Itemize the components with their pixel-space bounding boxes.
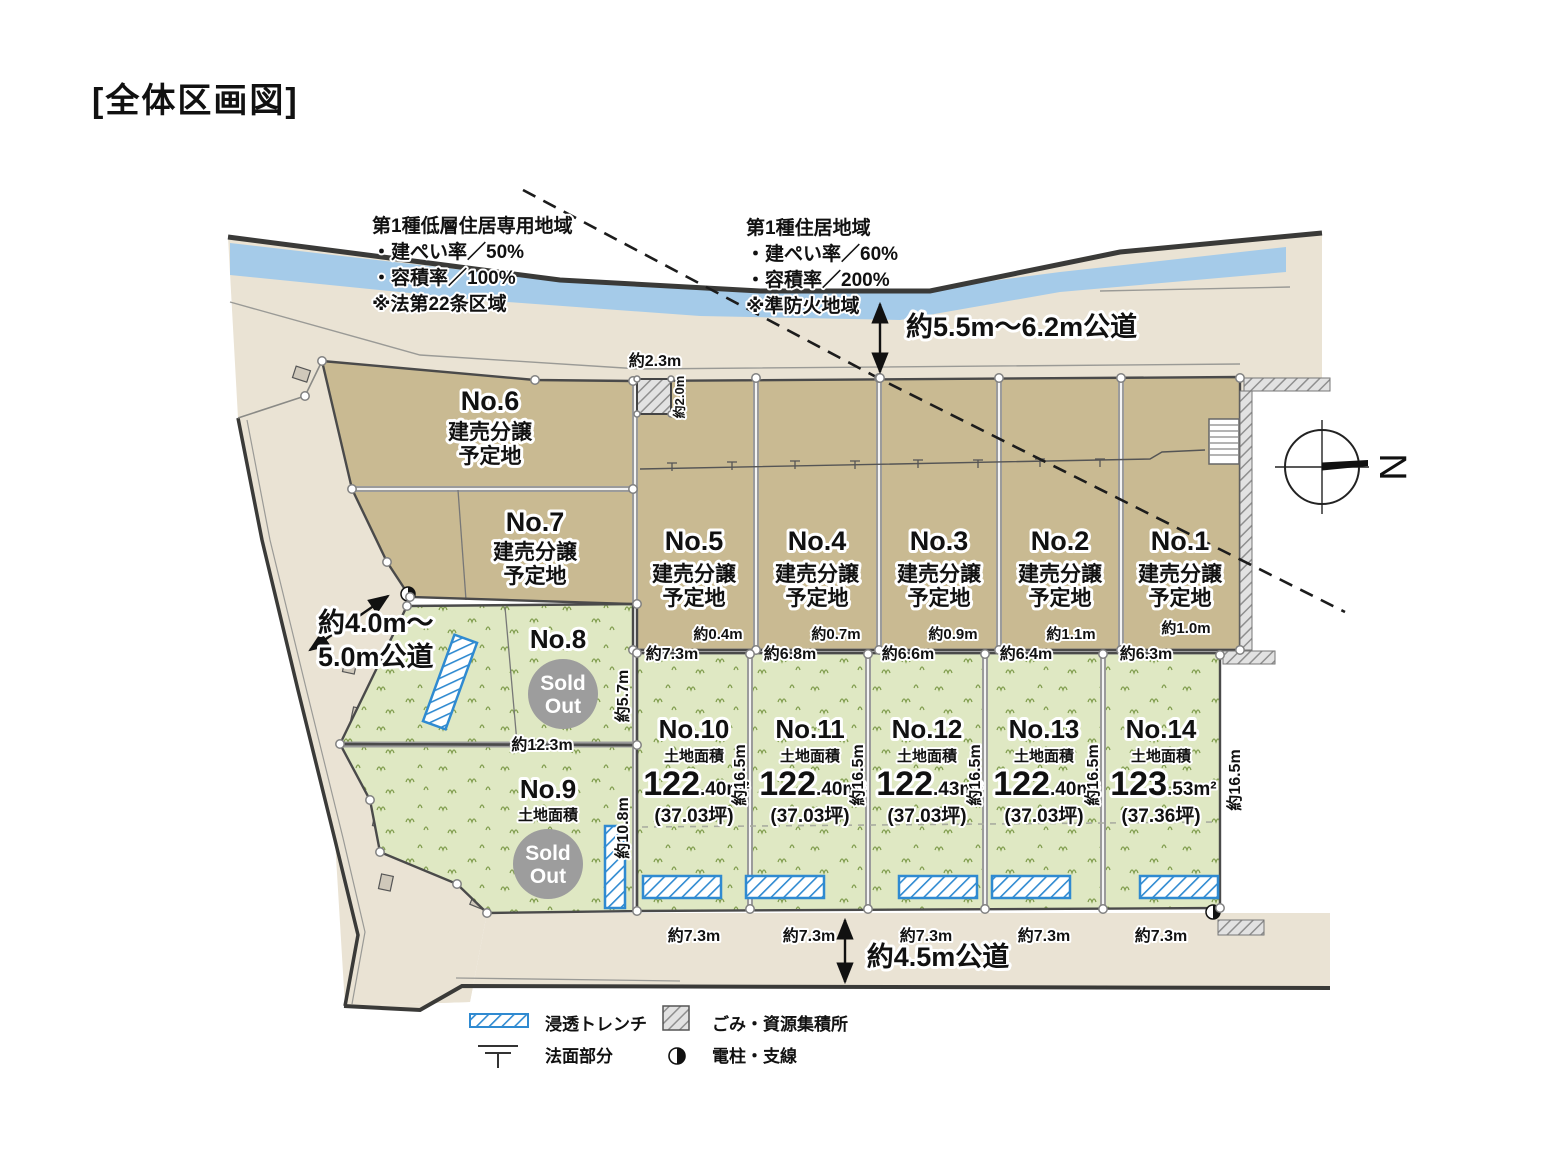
dim-brown-w2: 約6.8m — [764, 644, 816, 663]
dim-depth-no9: 約10.8m — [613, 797, 632, 858]
lot-no14-no: No.14 — [1126, 714, 1197, 744]
dim-green-w5: 約7.3m — [1135, 926, 1187, 945]
dim-offset-4: 約1.1m — [1046, 625, 1095, 643]
dim-green-w2: 約7.3m — [783, 926, 835, 945]
lot-no2-type1: 建売分譲 — [1018, 562, 1103, 586]
soldout-no8-line1: Sold — [540, 672, 586, 695]
lot-no7-no: No.7 — [506, 507, 565, 537]
lot-no10-area-label: 土地面積 — [664, 747, 725, 765]
compass-n: N — [1371, 453, 1413, 480]
lot-no6-type1: 建売分譲 — [448, 420, 533, 444]
lot-no13-no: No.13 — [1009, 714, 1080, 744]
lot-no1-type1: 建売分譲 — [1138, 562, 1223, 586]
zoning-left-coverage: ・建ぺい率／50% — [372, 240, 524, 263]
lot-no2-type2: 予定地 — [1029, 586, 1092, 610]
legend-item-pole — [669, 1048, 685, 1064]
legend-garbage-label: ごみ・資源集積所 — [712, 1014, 848, 1034]
dim-garbage: 約2.0m — [672, 376, 687, 419]
lot-no14-tsubo: (37.36坪) — [1121, 805, 1200, 827]
lot-no14-area-main: 123 — [1110, 765, 1167, 803]
zoning-right-name: 第1種住居地域 — [746, 216, 871, 239]
lot-no3-type2: 予定地 — [908, 586, 971, 610]
trench-swatch — [470, 1014, 528, 1027]
legend-item-garbage: ごみ・資源集積所 — [663, 1006, 848, 1034]
soldout-no8-line2: Out — [545, 695, 581, 718]
dim-top-setback: 約2.3m — [629, 351, 681, 370]
dim-no8-width: 約12.3m — [511, 735, 572, 754]
lot-no2-no: No.2 — [1031, 526, 1090, 556]
dim-offset-1: 約0.4m — [693, 625, 742, 643]
soldout-no8: Sold Out — [528, 659, 598, 729]
zoning-right-note: ※準防火地域 — [746, 294, 859, 317]
dim-depth-no8: 約5.7m — [613, 670, 632, 722]
hatch-strip-right — [1240, 391, 1252, 650]
left-road-label-2: 5.0m公道 — [318, 641, 434, 672]
lot-no12-area-label: 土地面積 — [897, 747, 958, 765]
lot-no10-tsubo: (37.03坪) — [654, 805, 733, 827]
lot-no5-no: No.5 — [665, 526, 724, 556]
soldout-no9-line1: Sold — [525, 842, 571, 865]
soldout-no9: Sold Out — [513, 829, 583, 899]
lot-no3-type1: 建売分譲 — [897, 562, 982, 586]
site-plan-page: Sold Out Sold Out [全体区画図] 第1種低層住居専用地域 ・建… — [0, 0, 1560, 1170]
garbage-area — [637, 379, 671, 414]
lot-no6-no: No.6 — [461, 386, 520, 416]
zoning-right-coverage: ・建ぺい率／60% — [746, 242, 898, 265]
lot-no11-area-label: 土地面積 — [780, 747, 841, 765]
legend-slope-label: 法面部分 — [545, 1046, 613, 1066]
lot-no10-area-main: 122 — [643, 765, 700, 803]
dim-green-w4: 約7.3m — [1018, 926, 1070, 945]
dim-brown-w3: 約6.6m — [882, 644, 934, 663]
dim-depth-1: 約16.5m — [730, 744, 749, 805]
lot-no14-area-label: 土地面積 — [1131, 747, 1192, 765]
dim-brown-w5: 約6.3m — [1120, 644, 1172, 663]
legend-item-trench: 浸透トレンチ — [470, 1014, 647, 1034]
dim-green-w3: 約7.3m — [900, 926, 952, 945]
dim-offset-2: 約0.7m — [811, 625, 860, 643]
lot-no6-type2: 予定地 — [459, 444, 522, 468]
lot-no3-no: No.3 — [910, 526, 969, 556]
lot-no4-no: No.4 — [788, 526, 847, 556]
dim-depth-4: 約16.5m — [1083, 744, 1102, 805]
lot-no13-area-label: 土地面積 — [1014, 747, 1075, 765]
site-plan-drawing: Sold Out Sold Out [全体区画図] 第1種低層住居専用地域 ・建… — [0, 0, 1560, 1170]
top-road-label: 約5.5m〜6.2m公道 — [906, 311, 1137, 342]
legend-trench-label: 浸透トレンチ — [545, 1014, 647, 1034]
lot-no4-type1: 建売分譲 — [775, 562, 860, 586]
dim-depth-2: 約16.5m — [848, 744, 867, 805]
stairs — [1209, 419, 1239, 464]
left-road-label-1: 約4.0m〜 — [318, 607, 434, 638]
lot-no7-type1: 建売分譲 — [493, 540, 578, 564]
dim-depth-3: 約16.5m — [965, 744, 984, 805]
hatch-strip-top-right — [1244, 378, 1330, 391]
garbage-swatch — [663, 1006, 689, 1030]
page-title: [全体区画図] — [92, 81, 299, 120]
lot-no5-type2: 予定地 — [663, 586, 726, 610]
lot-no9-no: No.9 — [520, 774, 576, 804]
lot-no5-type1: 建売分譲 — [652, 562, 737, 586]
lot-no12-no: No.12 — [892, 714, 963, 744]
legend: 浸透トレンチ ごみ・資源集積所 法面部分 電柱・支線 — [470, 1006, 848, 1068]
lot-no11-no: No.11 — [775, 714, 844, 744]
zoning-left-note: ※法第22条区域 — [372, 292, 507, 315]
hatch-strip-bottom-right — [1218, 920, 1264, 935]
lot-no14-area-sub: .53m² — [1167, 779, 1217, 800]
zoning-right-far: ・容積率／200% — [746, 268, 890, 291]
lot-no8-no: No.8 — [530, 624, 586, 654]
lot-no4-type2: 予定地 — [786, 586, 849, 610]
lot-no9-area-label: 土地面積 — [518, 806, 579, 824]
lot-no11-tsubo: (37.03坪) — [770, 805, 849, 827]
legend-pole-label: 電柱・支線 — [712, 1046, 797, 1066]
compass: N — [1275, 420, 1413, 514]
dim-green-w1: 約7.3m — [668, 926, 720, 945]
dim-brown-w4: 約6.4m — [1000, 644, 1052, 663]
zoning-left-name: 第1種低層住居専用地域 — [372, 214, 573, 237]
dim-depth-5: 約16.5m — [1225, 749, 1244, 810]
lot-no1-no: No.1 — [1151, 526, 1210, 556]
dim-offset-3: 約0.9m — [928, 625, 977, 643]
lot-no12-area-main: 122 — [876, 765, 933, 803]
lot-no13-area-main: 122 — [993, 765, 1050, 803]
lot-no11-area-main: 122 — [759, 765, 816, 803]
legend-item-slope — [478, 1046, 518, 1068]
bottom-road-edge — [344, 986, 1330, 1010]
lot-no10-no: No.10 — [659, 714, 730, 744]
dim-brown-w1: 約7.3m — [646, 644, 698, 663]
lot-no13-tsubo: (37.03坪) — [1004, 805, 1083, 827]
bottom-road-label: 約4.5m公道 — [867, 941, 1010, 972]
lot-no12-tsubo: (37.03坪) — [887, 805, 966, 827]
compass-needle — [1322, 460, 1368, 471]
soldout-no9-line2: Out — [530, 865, 566, 888]
zoning-left-far: ・容積率／100% — [372, 266, 516, 289]
lot-no1-type2: 予定地 — [1149, 586, 1212, 610]
dim-offset-5: 約1.0m — [1161, 619, 1210, 637]
hatch-strip-mid-right — [1223, 651, 1275, 664]
lot-no7-type2: 予定地 — [504, 564, 567, 588]
